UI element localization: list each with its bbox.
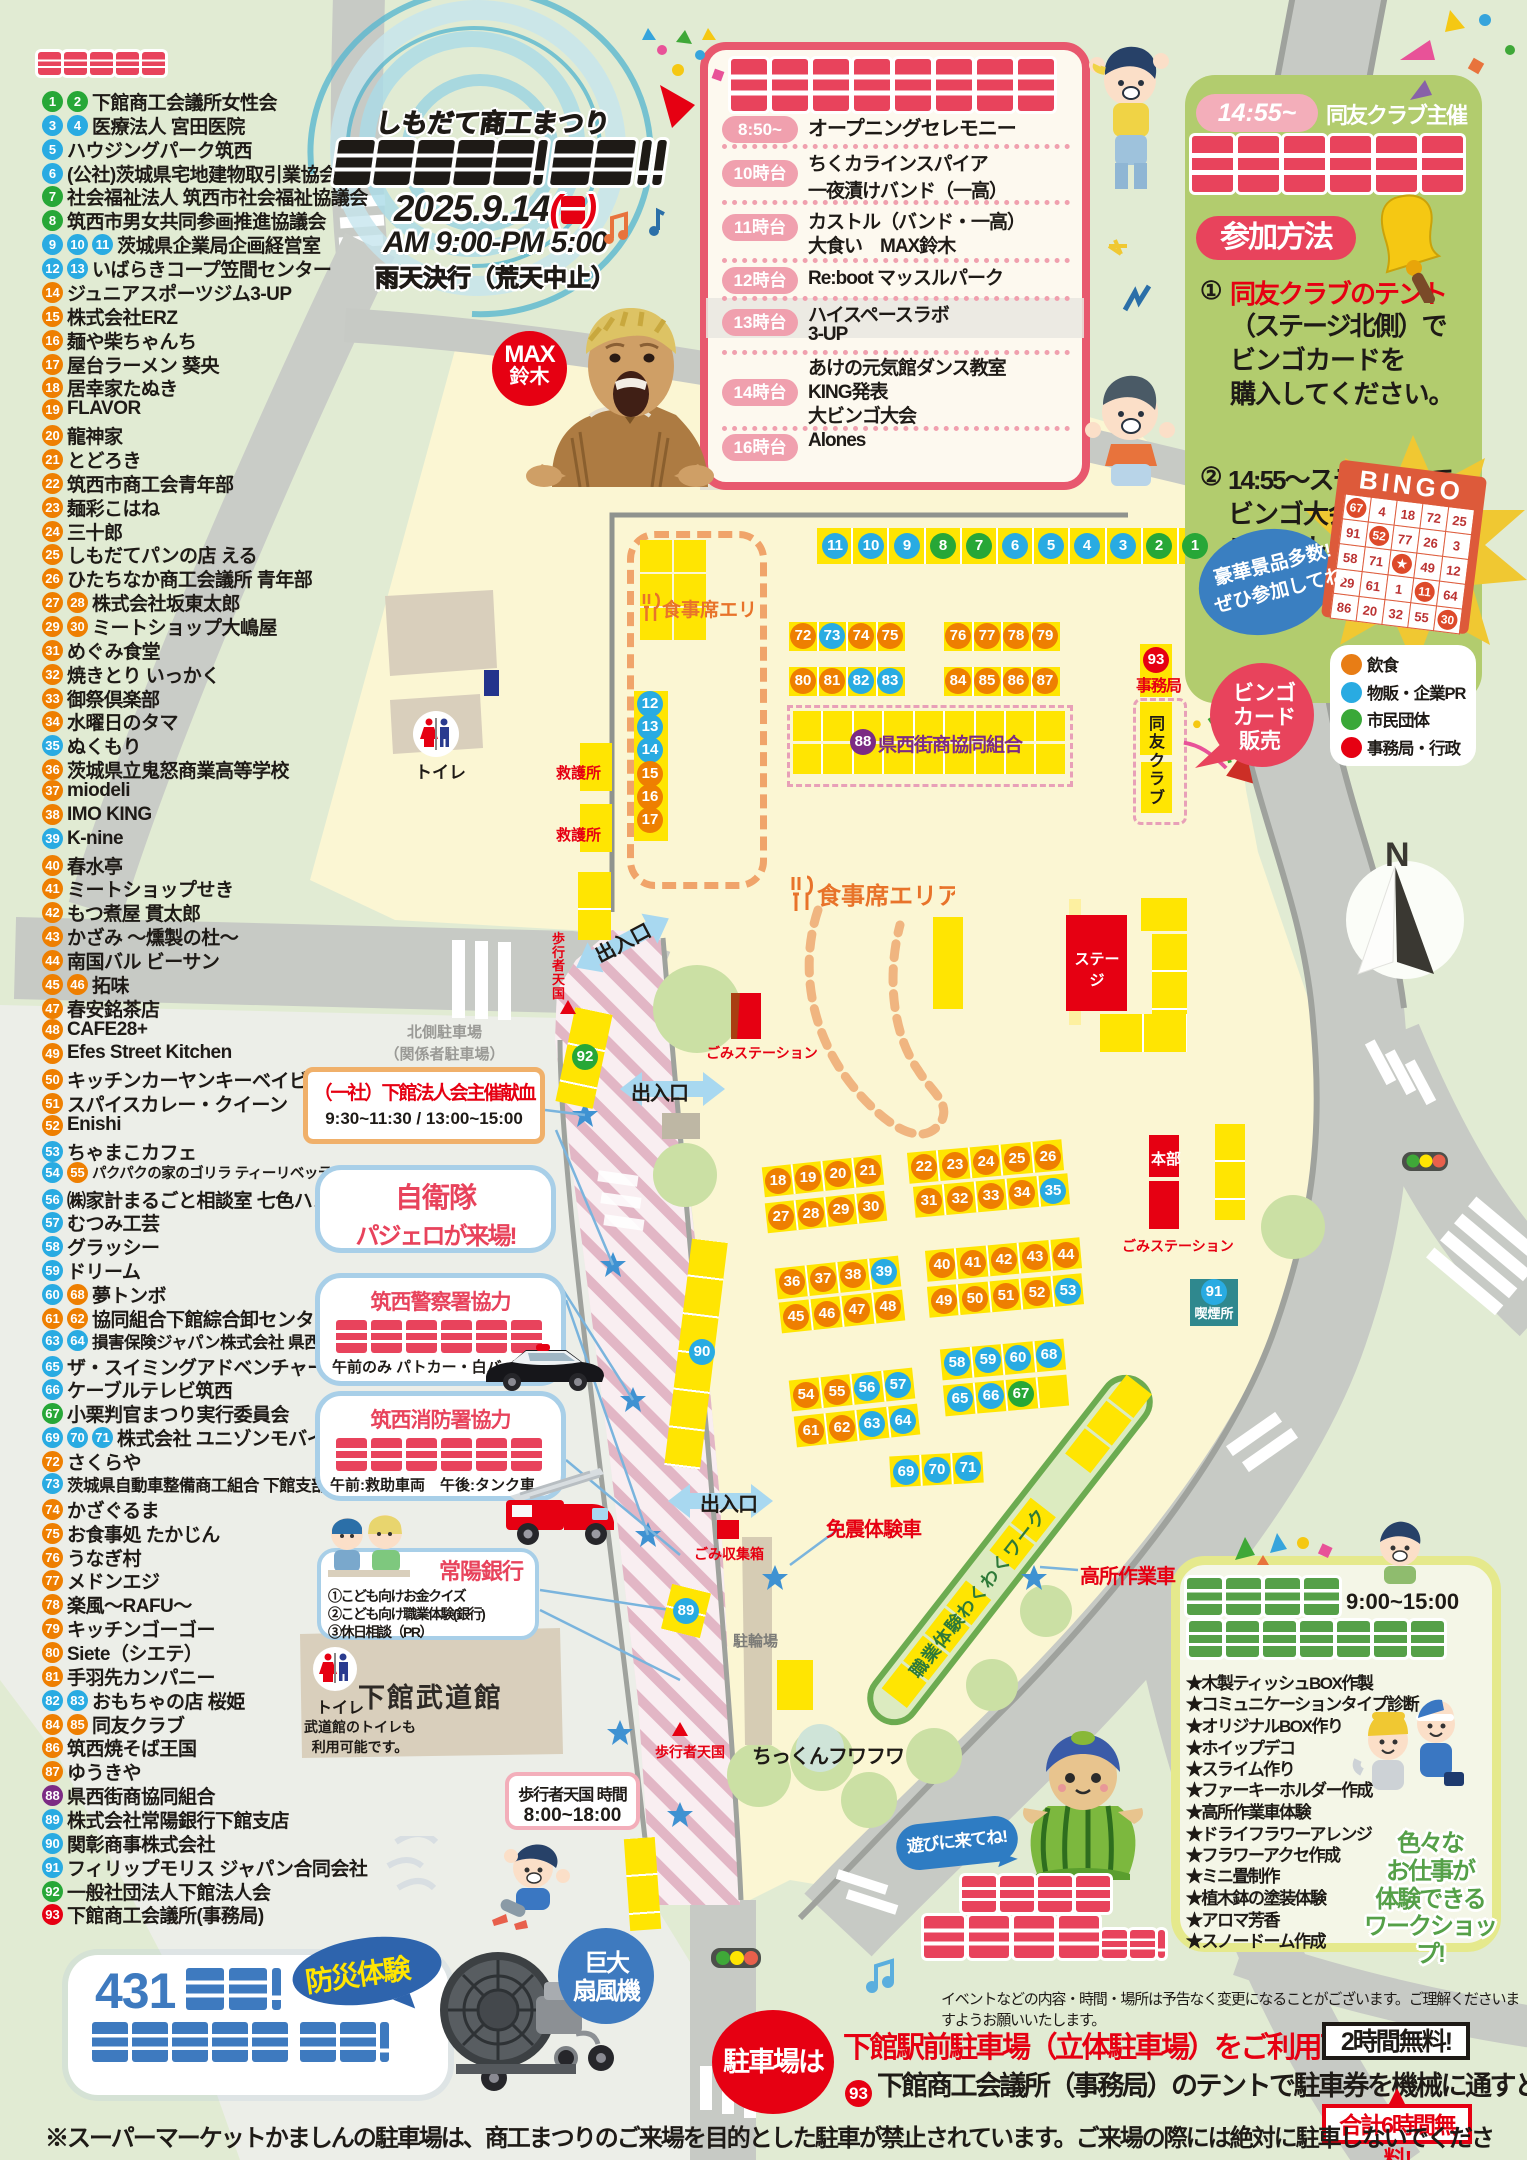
svg-text:N: N <box>1385 836 1410 874</box>
svg-text:食事席エリア: 食事席エリア <box>817 882 955 910</box>
svg-text:ビンゴ: ビンゴ <box>1233 681 1296 705</box>
svg-text:販売: 販売 <box>1239 730 1281 753</box>
svg-text:食事席エリア: 食事席エリア <box>662 598 758 621</box>
svg-text:カード: カード <box>1233 706 1296 729</box>
